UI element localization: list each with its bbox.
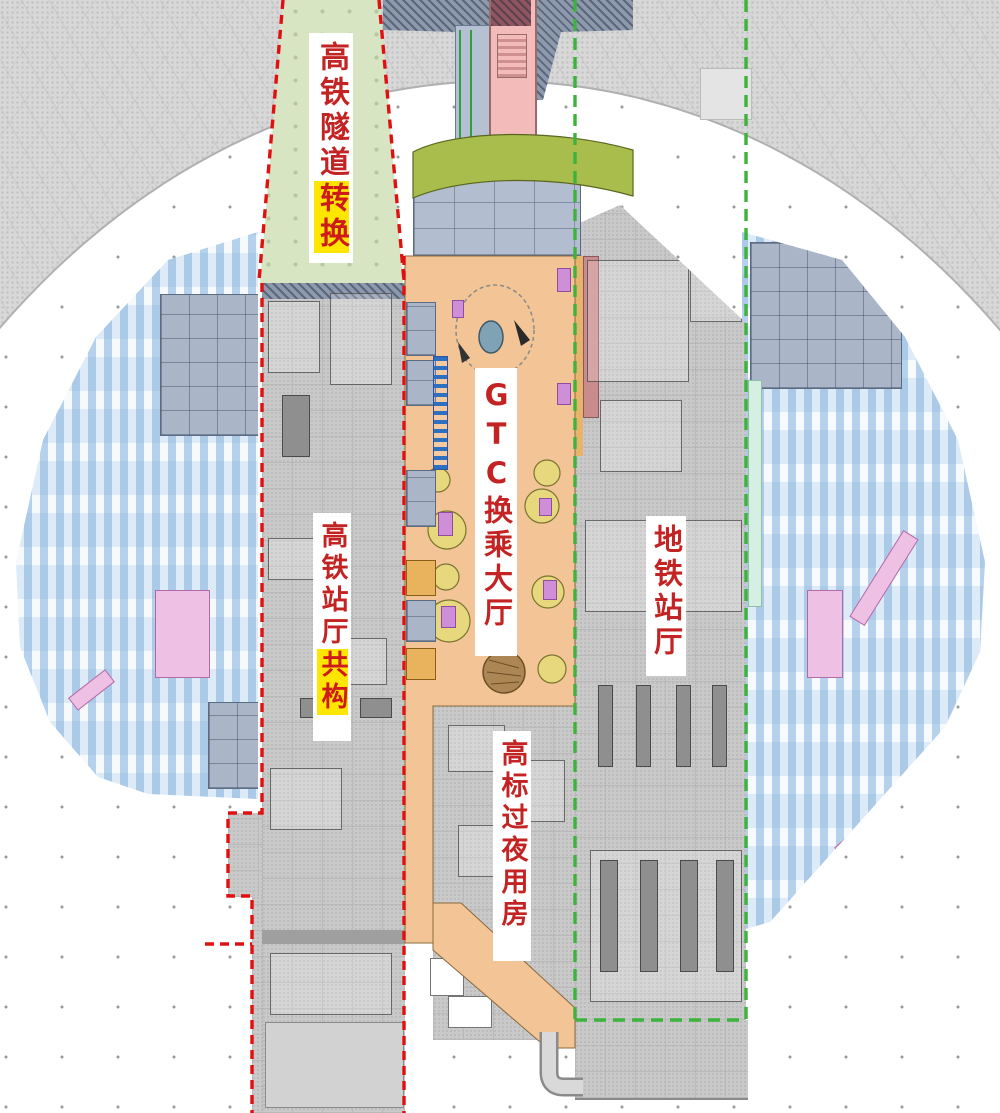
right-wing-ramp <box>807 590 843 678</box>
gtc-left-box <box>406 360 436 406</box>
hsr-room <box>270 768 342 830</box>
pod-lift <box>557 268 571 292</box>
gtc-left-box <box>406 600 436 642</box>
south-white-room <box>448 996 492 1028</box>
label-gtc-transfer-hall: GTC换乘大厅 <box>475 368 517 656</box>
corridor-stair <box>497 34 527 78</box>
label-text: GTC换乘大厅 <box>482 378 511 631</box>
metro-platform-stair <box>598 685 613 767</box>
metro-platform-stair <box>712 685 727 767</box>
hsr-stair-core <box>360 698 392 718</box>
gtc-left-box <box>406 302 436 356</box>
left-wing-ramp-small <box>68 669 115 711</box>
label-hsr-tunnel-transition: 高铁隧道转换 <box>309 33 353 263</box>
metro-platform-stair <box>716 860 734 972</box>
metro-orange-strip <box>575 256 583 456</box>
pod-lift <box>539 498 552 516</box>
left-wing-rooms-cluster <box>160 294 260 436</box>
hsr-stair-core <box>282 395 310 457</box>
south-white-room <box>430 958 464 996</box>
gtc-left-box-orange <box>406 648 436 680</box>
utility-block <box>700 68 752 120</box>
pod-lift <box>557 383 571 405</box>
label-highlight: 转换 <box>314 181 349 253</box>
hsr-band-annex <box>228 813 262 897</box>
corridor-top-core <box>491 0 531 26</box>
metro-platform-stair <box>640 860 658 972</box>
pod-lift <box>441 606 456 628</box>
label-metro-hall: 地铁站厅 <box>646 516 686 676</box>
hsr-room <box>270 953 392 1015</box>
metro-room <box>587 260 689 382</box>
right-wing-mint-strip <box>748 380 762 607</box>
hsr-band-lower-block <box>265 1022 404 1108</box>
label-overnight-rooms: 高标过夜用房 <box>493 731 531 961</box>
label-text: 地铁站厅 <box>652 524 681 660</box>
station-floorplan-canvas: 高铁隧道转换 GTC换乘大厅 地铁站厅 高铁站厅共构 高标过夜用房 <box>0 0 1000 1113</box>
left-wing-ramp <box>155 590 210 678</box>
pod-lift <box>438 512 453 536</box>
metro-band-south-block <box>575 1020 748 1100</box>
metro-platform-stair <box>680 860 698 972</box>
gtc-escalator-column <box>433 356 448 470</box>
hsr-room <box>330 293 392 385</box>
hsr-band-divider <box>262 930 405 944</box>
metro-platform-stair <box>636 685 651 767</box>
right-wing-ramp-diagonal <box>849 530 918 626</box>
left-wing-rooms-lower <box>208 702 262 789</box>
hsr-room <box>268 301 320 373</box>
metro-room <box>600 400 682 472</box>
label-text: 高标过夜用房 <box>499 739 526 931</box>
label-highlight: 共构 <box>317 649 348 715</box>
pod-lift <box>452 300 464 318</box>
metro-platform-stair <box>600 860 618 972</box>
north-rooms-block <box>413 178 581 256</box>
gtc-left-box <box>406 470 436 527</box>
metro-platform-stair <box>676 685 691 767</box>
label-text: 高铁站厅 <box>317 521 348 649</box>
hsr-band-edge-lower <box>252 896 262 1113</box>
label-text: 高铁隧道 <box>314 41 349 181</box>
pod-lift <box>543 580 557 600</box>
gtc-left-box-orange <box>406 560 436 596</box>
label-hsr-hall-coconstruction: 高铁站厅共构 <box>313 513 351 741</box>
